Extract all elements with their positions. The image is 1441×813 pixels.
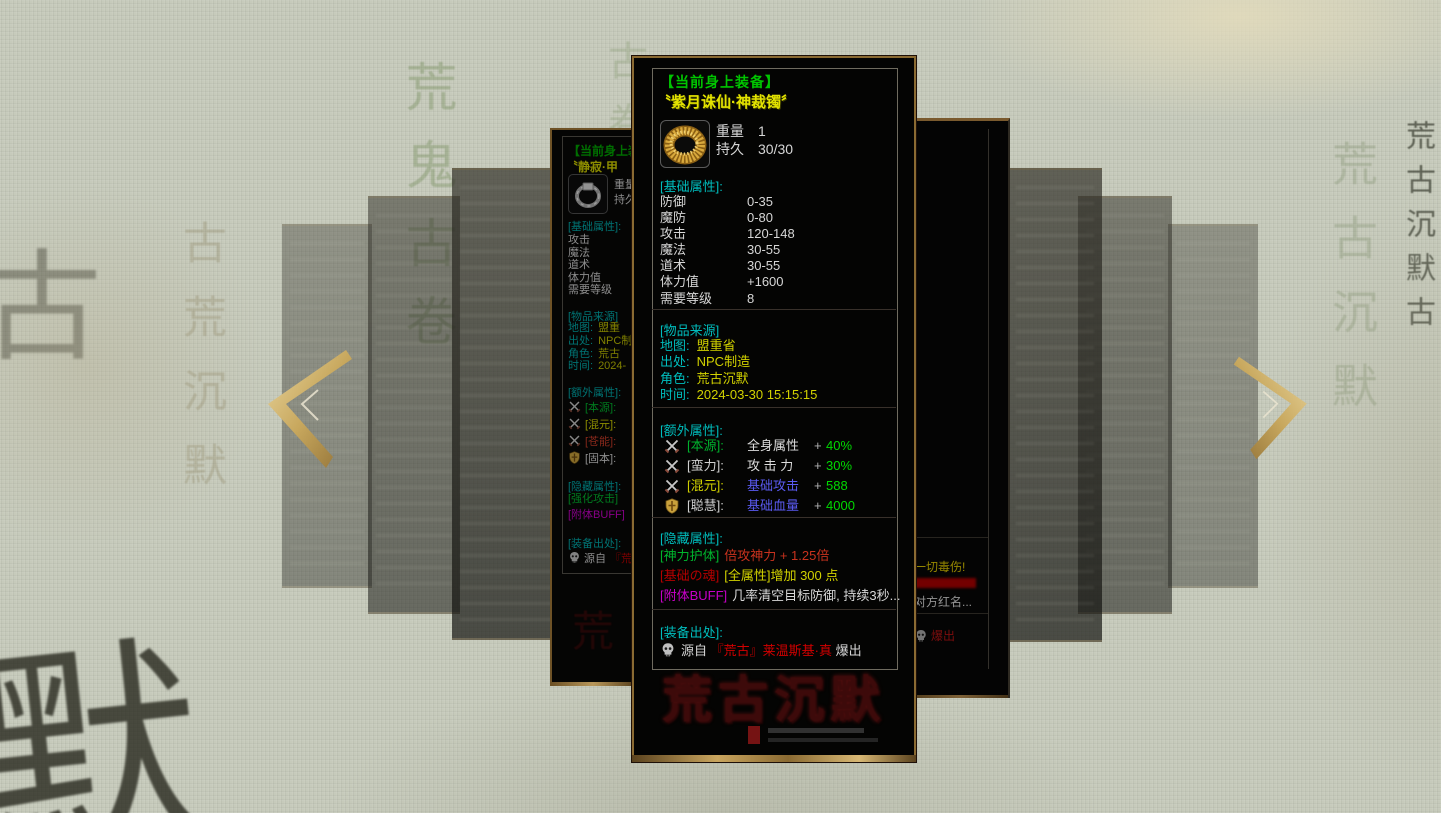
source-value: 盟重 xyxy=(598,322,620,334)
hidden-attr-row: [基础の魂][全属性]增加 300 点 xyxy=(660,566,886,586)
stat-label: 攻击 xyxy=(660,226,686,241)
plus-sign: + xyxy=(814,456,822,476)
crossed-swords-icon xyxy=(664,478,680,494)
attr-desc: [全属性]增加 300 点 xyxy=(724,568,838,583)
source-label: 角色: xyxy=(660,371,690,386)
stat-value: 120-148 xyxy=(747,226,795,242)
attr-name: [神力护体] xyxy=(660,548,719,563)
source-value: 2024- xyxy=(598,360,626,372)
hidden-attr-name: [附体BUFF] xyxy=(568,508,625,524)
extra-attr-row: [混元]: xyxy=(568,417,616,434)
base-stats-title: [基础属性]: xyxy=(568,218,621,234)
hidden-attr-fragment: 对方红名... xyxy=(914,593,972,610)
ink-brush-column: 荒古沉默古 xyxy=(1395,120,1439,340)
panel-bottom-border xyxy=(912,695,1008,698)
weight-label: 重量 xyxy=(614,179,634,191)
attr-name: [蛮力]: xyxy=(687,456,724,476)
source-value: NPC制造 xyxy=(697,354,750,369)
crossed-swords-icon xyxy=(568,434,581,447)
item-source-table: 地图:盟重省出处:NPC制造角色:荒古沉默时间:2024-03-30 15:15… xyxy=(660,338,817,403)
stat-label: 需要等级 xyxy=(568,284,612,297)
attr-value: 40% xyxy=(826,436,852,456)
crossed-swords-icon xyxy=(664,438,680,454)
stat-label: 魔防 xyxy=(660,210,686,225)
game-logo-watermark: 荒古沉默 xyxy=(634,660,914,732)
source-label: 出处: xyxy=(660,354,690,369)
attr-stat: 基础血量 xyxy=(747,496,799,516)
hidden-attr-fragment: 一切毒伤! xyxy=(914,558,965,575)
drop-origin-row: 源自『荒 xyxy=(568,550,632,566)
stat-row: 体力值+1600 xyxy=(660,274,880,290)
durability-label: 持久 xyxy=(614,194,634,206)
carousel-next-arrow[interactable] xyxy=(1232,352,1312,464)
attr-stat: 全身属性 xyxy=(747,436,799,456)
logo-seal xyxy=(748,726,760,744)
origin-prefix: 源自 xyxy=(584,553,606,565)
drop-origin-fragment: 爆出 xyxy=(914,627,955,644)
source-row: 地图:盟重省 xyxy=(660,338,817,354)
stat-label: 攻击 xyxy=(568,234,612,247)
stat-label: 需要等级 xyxy=(660,291,712,306)
stat-row: 攻击120-148 xyxy=(660,226,880,242)
attr-name: [基础の魂] xyxy=(660,568,719,583)
equipped-header: 【当前身上装 xyxy=(568,142,634,159)
extra-attrs-list: [本源]:[混元]:[苍能]:[固本]: xyxy=(568,400,616,468)
section-divider xyxy=(652,309,896,310)
shield-icon xyxy=(664,498,680,514)
boss-name: 『荒古』莱温斯基·真 xyxy=(711,643,832,658)
source-row: 时间:2024-03-30 15:15:15 xyxy=(660,387,817,403)
attr-name: [混元]: xyxy=(585,419,616,431)
crossed-swords-icon xyxy=(568,417,581,430)
durability-label: 持久 xyxy=(716,140,758,158)
tooltip-inner-frame xyxy=(988,129,989,669)
section-divider xyxy=(912,537,988,538)
attr-value: 4000 xyxy=(826,496,855,516)
stat-row: 魔防0-80 xyxy=(660,210,880,226)
watermark-calligraphy-column: 荒古沉默 xyxy=(1318,140,1384,436)
ink-brush-glyph: 默 xyxy=(0,559,219,813)
extra-attr-row: [苍能]: xyxy=(568,434,616,451)
hidden-attrs-table: [神力护体]倍攻神力 + 1.25倍[基础の魂][全属性]增加 300 点[附体… xyxy=(660,546,886,606)
stat-label: 体力值 xyxy=(568,272,612,285)
stat-row: 防御0-35 xyxy=(660,194,880,210)
source-row: 出处:NPC制 xyxy=(568,335,632,348)
stat-row: 魔法30-55 xyxy=(660,242,880,258)
logo-subtext-bar xyxy=(768,728,864,733)
source-row: 角色:荒古沉默 xyxy=(660,371,817,387)
extra-attr-row: [固本]: xyxy=(568,451,616,468)
drop-origin-title: [装备出处]: xyxy=(660,622,723,641)
extra-attr-row: [本源]:全身属性+40% xyxy=(660,436,886,456)
source-row: 出处:NPC制造 xyxy=(660,354,817,370)
item-tooltip-panel-left[interactable]: 【当前身上装 〝静寂·甲 重量 持久 [基础属性]: 攻击魔法道术体力值需要等级… xyxy=(550,128,634,686)
attr-name: [附体BUFF] xyxy=(660,588,727,603)
attr-name: [苍能]: xyxy=(585,436,616,448)
attr-stat: 攻 击 力 xyxy=(747,456,793,476)
hidden-attr-row: [附体BUFF]几率清空目标防御, 持续3秒... xyxy=(660,586,886,606)
chevron-right-inner-icon xyxy=(1263,391,1277,417)
attr-name: [混元]: xyxy=(687,476,724,496)
origin-suffix: 爆出 xyxy=(836,643,862,658)
ring-item-icon xyxy=(568,174,608,214)
stat-label: 魔法 xyxy=(568,247,612,260)
stat-label: 体力值 xyxy=(660,274,699,289)
stat-value: 0-80 xyxy=(747,210,773,226)
ring-icon xyxy=(569,175,607,213)
source-value: 2024-03-30 15:15:15 xyxy=(697,387,818,402)
carousel-ghost-panel-right-1[interactable] xyxy=(1008,168,1102,642)
source-value: 盟重省 xyxy=(697,338,736,353)
crossed-swords-icon xyxy=(664,458,680,474)
origin-prefix: 源自 xyxy=(681,643,707,658)
skull-icon xyxy=(914,629,928,643)
source-row: 时间:2024- xyxy=(568,360,632,373)
attr-name: [本源]: xyxy=(687,436,724,456)
chevron-left-icon xyxy=(268,350,352,468)
attr-desc: 几率清空目标防御, 持续3秒... xyxy=(732,588,900,603)
item-name: 〝静寂·甲 xyxy=(566,158,618,175)
weight-value: 1 xyxy=(758,123,766,139)
logo-subtext-bar xyxy=(768,738,878,742)
base-stats-list: 攻击魔法道术体力值需要等级 xyxy=(568,234,612,297)
drop-origin-title: [装备出处]: xyxy=(568,535,621,551)
panel-watermark-glyph: 荒 xyxy=(572,598,614,659)
stat-label: 防御 xyxy=(660,194,686,209)
item-source-title: [物品来源] xyxy=(660,320,719,339)
source-row: 角色:荒古 xyxy=(568,348,632,361)
section-divider xyxy=(912,613,988,614)
plus-sign: + xyxy=(814,496,822,516)
bracelet-icon xyxy=(661,121,709,167)
attr-value: 588 xyxy=(826,476,848,496)
stat-value: 30-55 xyxy=(747,242,780,258)
source-value: 荒古 xyxy=(598,348,620,360)
source-label: 时间: xyxy=(568,360,593,372)
bracelet-item-icon[interactable] xyxy=(660,120,710,168)
shield-icon xyxy=(568,451,581,464)
extra-attr-row: [聪慧]:基础血量+4000 xyxy=(660,496,886,516)
stat-value: 8 xyxy=(747,291,754,307)
stat-value: 0-35 xyxy=(747,194,773,210)
source-row: 地图:盟重 xyxy=(568,322,632,335)
hidden-attr-row: [神力护体]倍攻神力 + 1.25倍 xyxy=(660,546,886,566)
section-divider xyxy=(652,517,896,518)
source-label: 出处: xyxy=(568,335,593,347)
item-tooltip-panel-center: 【当前身上装备】 〝紫月诛仙·神裁镯〞 重量1 持久30/30 [基础属性]: … xyxy=(632,56,916,762)
carousel-ghost-panel-left-2[interactable] xyxy=(368,196,460,614)
blurred-red-text xyxy=(914,578,976,588)
hidden-attrs-list: [强化攻击][附体BUFF] xyxy=(568,492,625,523)
source-label: 地图: xyxy=(568,322,593,334)
stat-label: 魔法 xyxy=(660,242,686,257)
hidden-attrs-title: [隐藏属性]: xyxy=(660,528,723,547)
section-divider xyxy=(652,407,896,408)
source-value: 荒古沉默 xyxy=(697,371,749,386)
weight-label: 重量 xyxy=(716,122,758,140)
extra-attr-row: [本源]: xyxy=(568,400,616,417)
item-tooltip-panel-right[interactable]: 一切毒伤! 对方红名... 爆出 xyxy=(912,118,1010,698)
section-divider xyxy=(652,609,896,610)
chevron-right-icon xyxy=(1234,357,1307,460)
stat-value: 30-55 xyxy=(747,258,780,274)
attr-name: [固本]: xyxy=(585,453,616,465)
source-label: 地图: xyxy=(660,338,690,353)
item-name: 〝紫月诛仙·神裁镯〞 xyxy=(656,91,796,112)
attr-name: [本源]: xyxy=(585,402,616,414)
source-value: NPC制 xyxy=(598,335,632,347)
panel-bottom-border xyxy=(632,755,916,762)
drop-origin-row: 源自 『荒古』莱温斯基·真 爆出 xyxy=(660,640,862,659)
stat-row: 需要等级8 xyxy=(660,291,880,307)
skull-icon xyxy=(568,551,581,564)
carousel-ghost-panel-left-1[interactable] xyxy=(452,168,560,640)
plus-sign: + xyxy=(814,476,822,496)
base-stats-title: [基础属性]: xyxy=(660,176,723,195)
ink-brush-glyph: 古 xyxy=(0,210,102,384)
attr-stat: 基础攻击 xyxy=(747,476,799,496)
source-label: 角色: xyxy=(568,348,593,360)
hidden-attr-name: [强化攻击] xyxy=(568,492,625,508)
plus-sign: + xyxy=(814,436,822,456)
stat-label: 道术 xyxy=(660,258,686,273)
boss-name-fragment: 『荒 xyxy=(610,553,632,565)
attr-name: [聪慧]: xyxy=(687,496,724,516)
source-label: 时间: xyxy=(660,387,690,402)
extra-attrs-title: [额外属性]: xyxy=(568,384,621,400)
attr-value: 30% xyxy=(826,456,852,476)
equipped-header: 【当前身上装备】 xyxy=(660,72,780,92)
weight-durability: 重量1 持久30/30 xyxy=(716,122,793,158)
game-screen: 荒鬼古卷 古荒沉默 荒古沉默 古卷荒默 默 古 荒古沉默古 【当前身上装 〝静寂… xyxy=(0,0,1441,813)
durability-value: 30/30 xyxy=(758,141,793,157)
weight-durability: 重量 持久 xyxy=(614,178,634,208)
stat-value: +1600 xyxy=(747,274,784,290)
carousel-prev-arrow[interactable] xyxy=(262,350,354,468)
item-source-list: 地图:盟重出处:NPC制角色:荒古时间:2024- xyxy=(568,322,632,373)
skull-icon xyxy=(660,642,676,658)
drop-label: 爆出 xyxy=(931,629,955,643)
watermark-calligraphy-column: 古荒沉默 xyxy=(168,220,232,516)
crossed-swords-icon xyxy=(568,400,581,413)
extra-attr-row: [蛮力]:攻 击 力+30% xyxy=(660,456,886,476)
extra-attr-row: [混元]:基础攻击+588 xyxy=(660,476,886,496)
panel-bottom-border xyxy=(552,682,634,686)
chevron-left-inner-icon xyxy=(302,390,318,420)
stat-row: 道术30-55 xyxy=(660,258,880,274)
attr-desc: 倍攻神力 + 1.25倍 xyxy=(724,548,829,563)
base-stats-table: 防御0-35魔防0-80攻击120-148魔法30-55道术30-55体力值+1… xyxy=(660,194,880,307)
stat-label: 道术 xyxy=(568,259,612,272)
extra-attrs-table: [本源]:全身属性+40%[蛮力]:攻 击 力+30%[混元]:基础攻击+588… xyxy=(660,436,886,516)
